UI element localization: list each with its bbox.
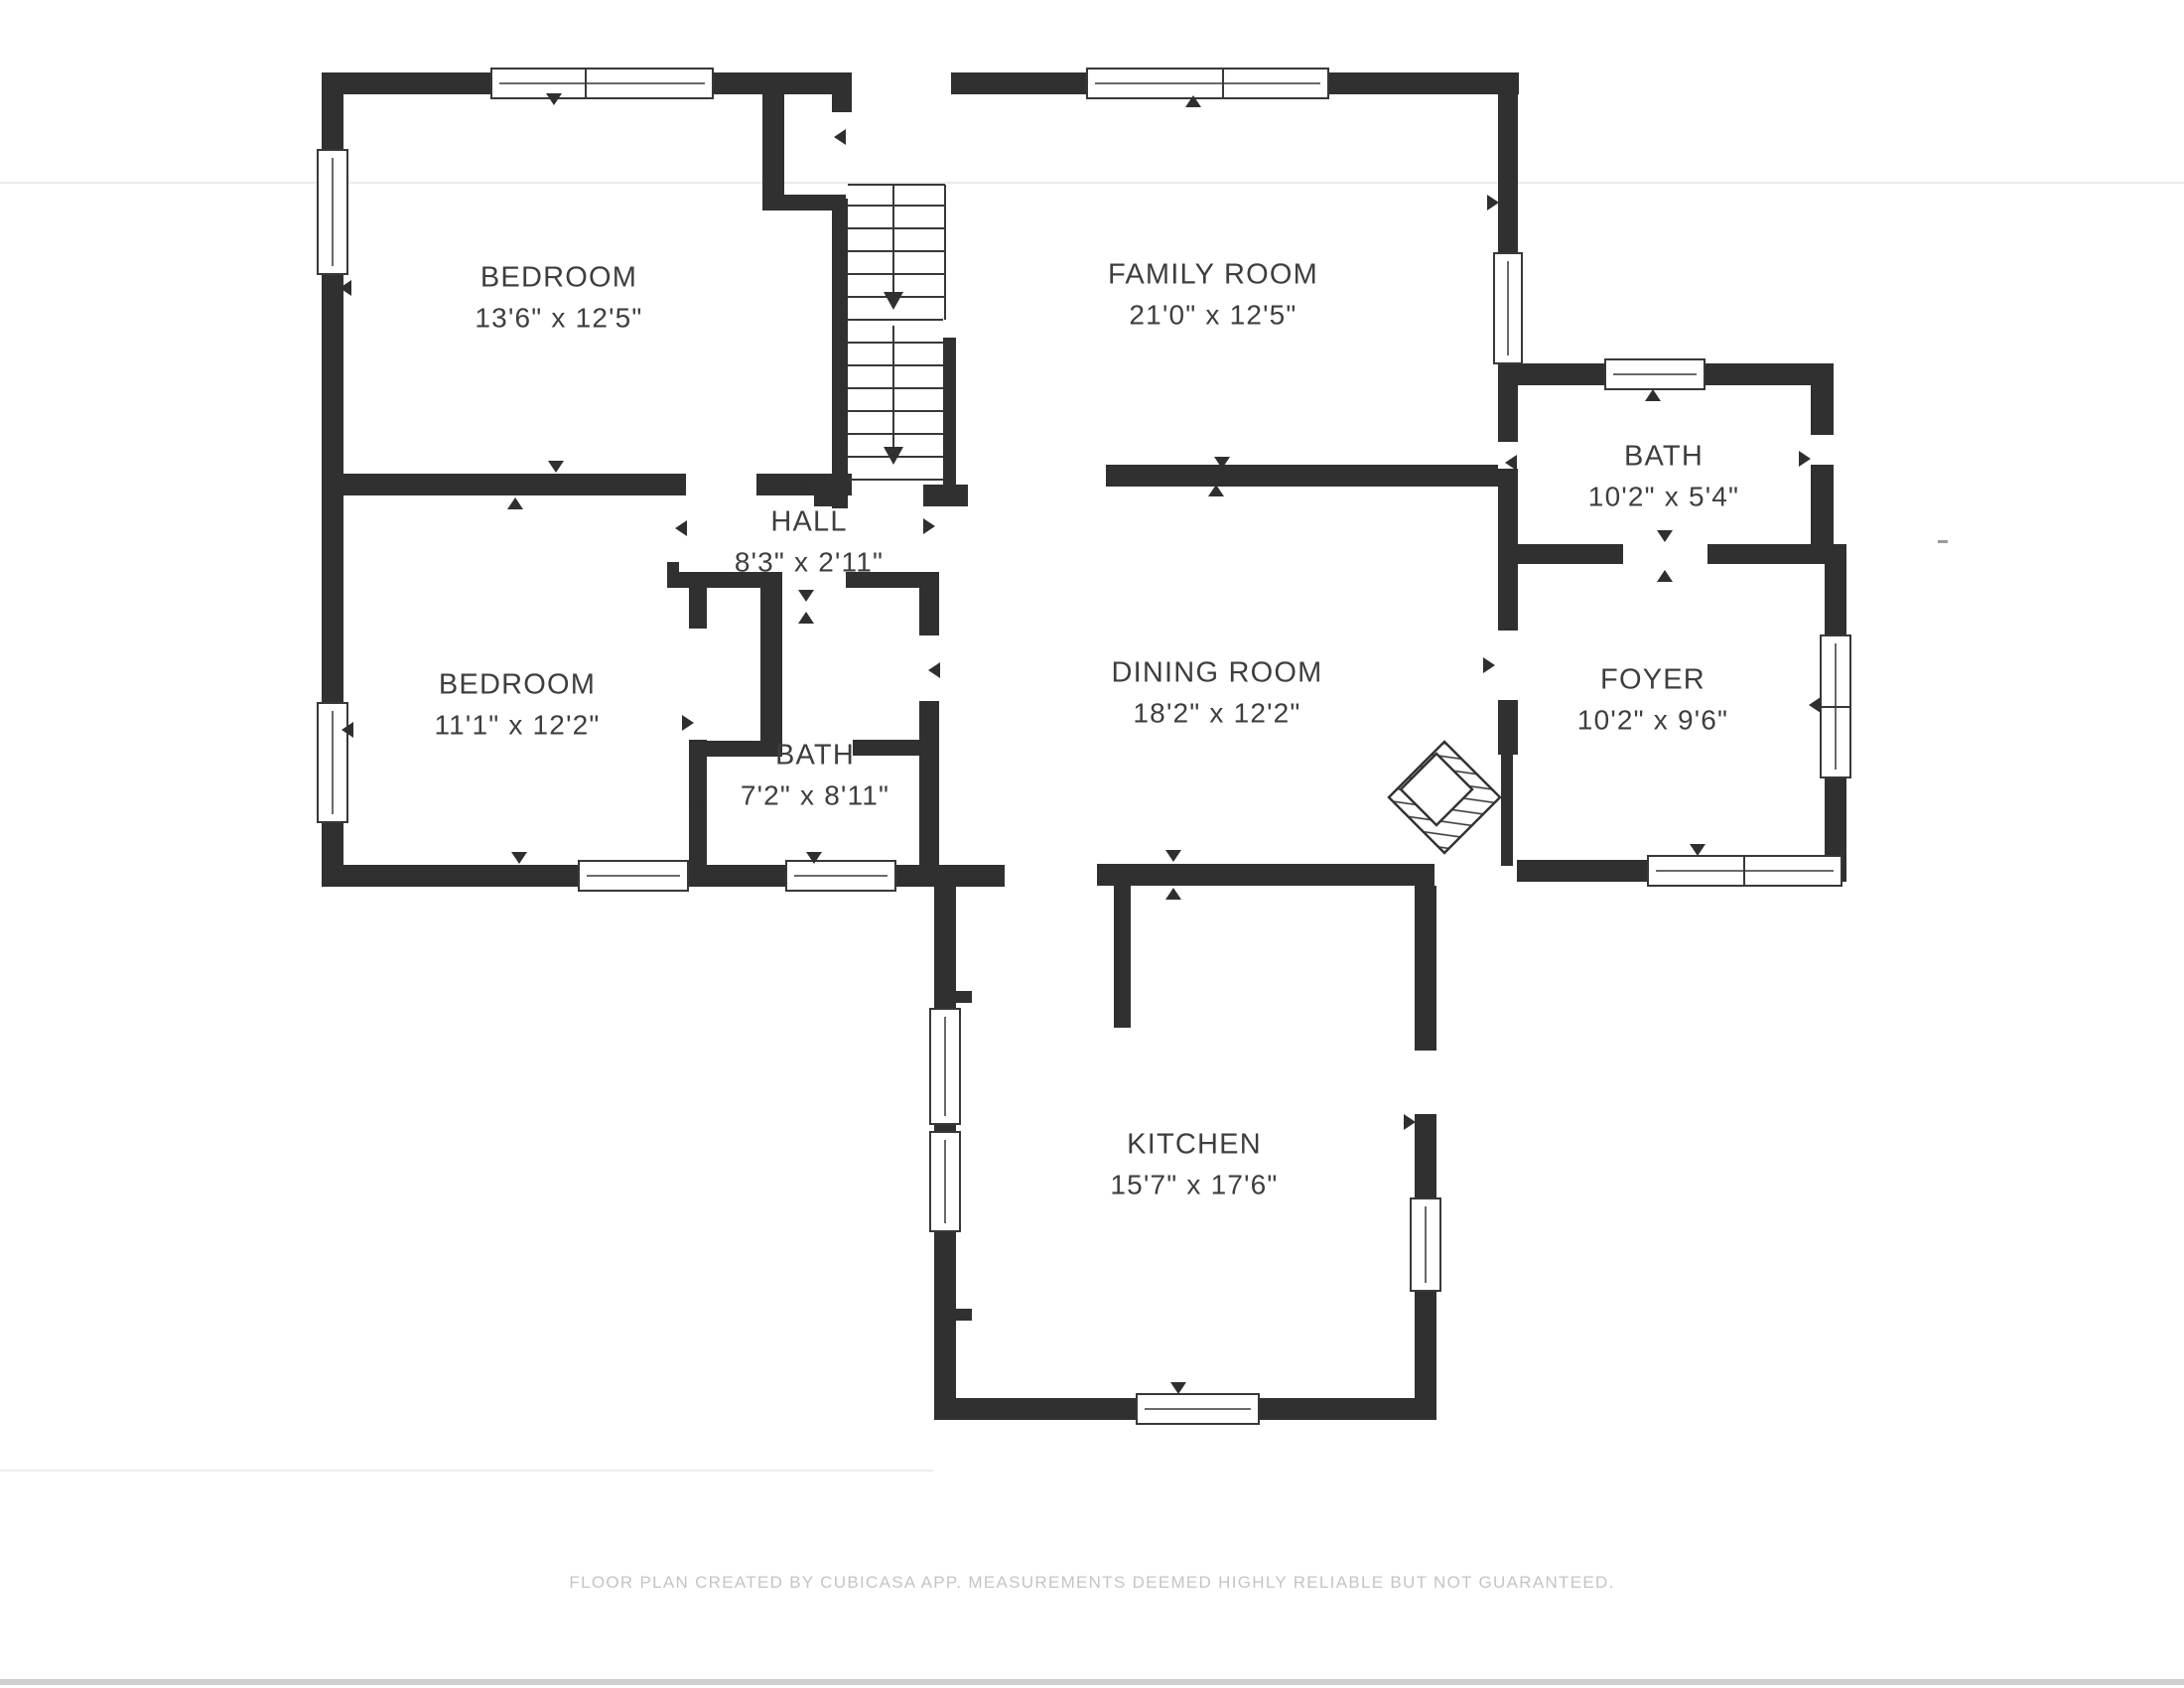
room-label-hall: HALL 8'3" x 2'11" xyxy=(735,506,884,579)
room-label-kitchen: KITCHEN 15'7" x 17'6" xyxy=(1110,1129,1278,1201)
room-dimensions: 7'2" x 8'11" xyxy=(741,780,889,812)
floor-plan-drawing xyxy=(0,0,2184,1688)
room-dimensions: 8'3" x 2'11" xyxy=(735,547,884,579)
room-dimensions: 10'2" x 9'6" xyxy=(1577,705,1728,737)
room-label-foyer: FOYER 10'2" x 9'6" xyxy=(1577,664,1728,737)
room-label-family-room: FAMILY ROOM 21'0" x 12'5" xyxy=(1108,259,1318,332)
stairs-down-arrow xyxy=(884,292,903,310)
room-name: BEDROOM xyxy=(434,669,600,702)
interior-walls xyxy=(322,94,1498,1028)
room-name: DINING ROOM xyxy=(1112,657,1323,690)
room-dimensions: 11'1" x 12'2" xyxy=(434,710,600,742)
floor-plan-canvas: BEDROOM 13'6" x 12'5" FAMILY ROOM 21'0" … xyxy=(0,0,2184,1688)
room-name: BATH xyxy=(1588,441,1739,474)
footer-disclaimer: FLOOR PLAN CREATED BY CUBICASA APP. MEAS… xyxy=(569,1573,1614,1593)
floor-plan-page: { "page": { "background": "#ffffff", "fo… xyxy=(0,0,2184,1688)
room-label-bedroom-1: BEDROOM 13'6" x 12'5" xyxy=(475,262,642,335)
room-name: KITCHEN xyxy=(1110,1129,1278,1162)
room-name: HALL xyxy=(735,506,884,539)
room-label-bath-upper: BATH 10'2" x 5'4" xyxy=(1588,441,1739,513)
room-dimensions: 21'0" x 12'5" xyxy=(1108,300,1318,332)
room-label-bedroom-2: BEDROOM 11'1" x 12'2" xyxy=(434,669,600,742)
room-dimensions: 13'6" x 12'5" xyxy=(475,303,642,335)
room-name: BEDROOM xyxy=(475,262,642,295)
room-name: FAMILY ROOM xyxy=(1108,259,1318,292)
room-dimensions: 18'2" x 12'2" xyxy=(1112,698,1323,730)
room-name: BATH xyxy=(741,740,889,773)
fireplace-symbol xyxy=(1389,742,1500,853)
stairs xyxy=(848,185,945,480)
room-label-dining-room: DINING ROOM 18'2" x 12'2" xyxy=(1112,657,1323,730)
room-name: FOYER xyxy=(1577,664,1728,697)
room-dimensions: 15'7" x 17'6" xyxy=(1110,1170,1278,1201)
room-dimensions: 10'2" x 5'4" xyxy=(1588,482,1739,513)
page-bottom-scan-edge xyxy=(0,1679,2184,1685)
room-label-bath-center: BATH 7'2" x 8'11" xyxy=(741,740,889,812)
